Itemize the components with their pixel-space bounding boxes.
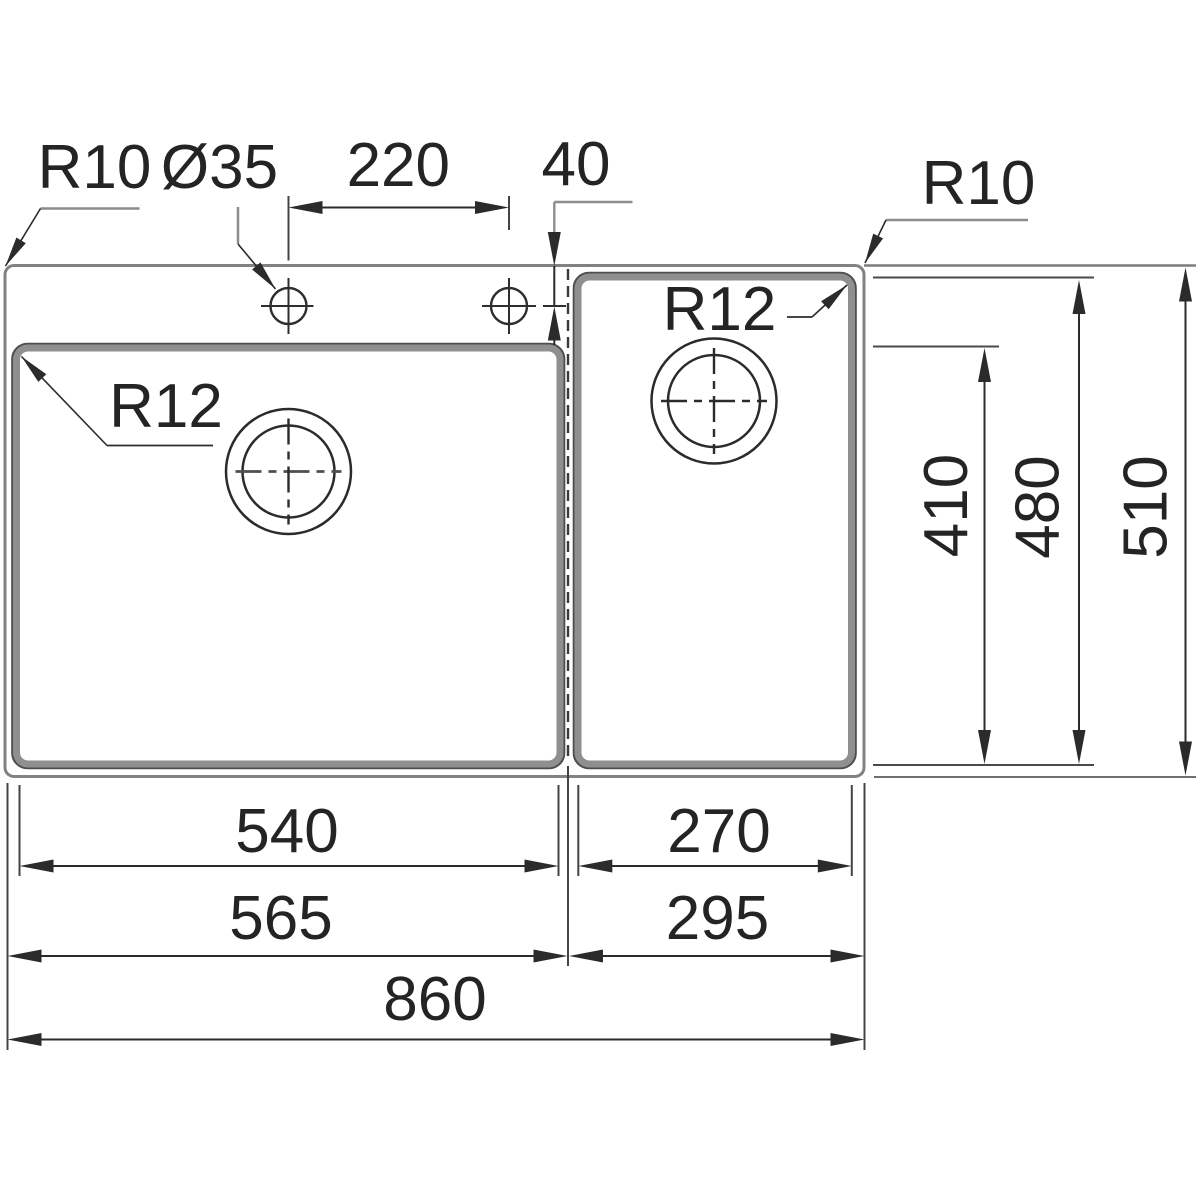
svg-text:R12: R12 <box>109 372 223 441</box>
svg-text:295: 295 <box>666 884 769 953</box>
svg-text:Ø35: Ø35 <box>161 133 278 202</box>
svg-text:860: 860 <box>383 965 486 1034</box>
svg-text:R10: R10 <box>922 149 1036 218</box>
svg-text:40: 40 <box>542 130 611 199</box>
svg-text:480: 480 <box>1004 455 1073 558</box>
svg-text:270: 270 <box>667 797 770 866</box>
svg-text:565: 565 <box>229 884 332 953</box>
svg-text:220: 220 <box>347 131 450 200</box>
svg-text:510: 510 <box>1112 455 1181 558</box>
svg-text:540: 540 <box>235 797 338 866</box>
svg-text:R12: R12 <box>663 275 777 344</box>
svg-text:R10: R10 <box>38 133 152 202</box>
svg-text:410: 410 <box>912 454 981 557</box>
